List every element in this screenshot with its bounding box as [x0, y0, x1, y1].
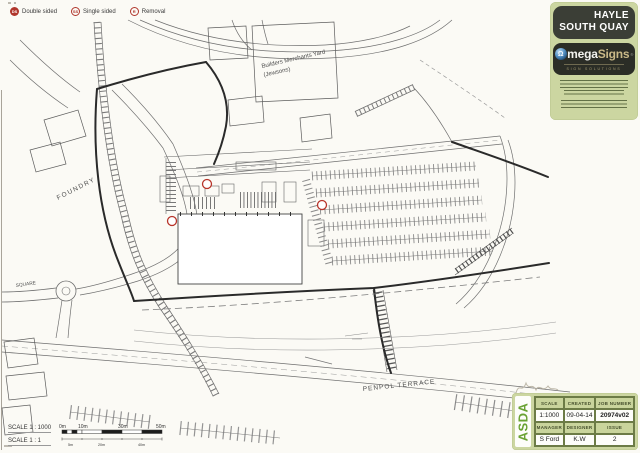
label-builders-yard: Builders Merchants Yard [261, 49, 326, 70]
asda-logo: ASDA [516, 402, 531, 441]
label-foundry: FOUNDRY [56, 176, 97, 202]
asda-logo-strip: ASDA [515, 396, 531, 447]
job-header-cell: JOB NUMBER [595, 397, 634, 409]
scale-header-cell: SCALE [535, 397, 564, 409]
scanned-plan-page: Builders Merchants Yard (Jewsons) FOUNDR… [0, 0, 640, 453]
scale-value-cell: 1:1000 [535, 409, 564, 421]
store-building [178, 214, 302, 284]
scan-artifacts [2, 3, 17, 450]
scale-block: SCALE 1 : 1000 SCALE 1 : 1 0m 10m 30m 50… [8, 423, 198, 451]
scale-sub-5m: 5m [68, 443, 73, 447]
sign-marker [318, 201, 327, 210]
fine-print-block [564, 90, 623, 97]
manager-header-cell: MANAGER [535, 422, 564, 434]
designer-value-cell: K.W [564, 434, 596, 446]
north-swing-roads [10, 20, 505, 142]
scale-sub-20m: 20m [98, 443, 105, 447]
job-value-cell: 20974v02 [595, 409, 634, 421]
title-block: ASDA SCALE CREATED JOB NUMBER 1:1000 09-… [512, 393, 638, 450]
legend-label: Double sided [22, 9, 57, 15]
omega-sphere-icon: Ω [555, 48, 567, 60]
legend-item-double-sided: DS Double sided [10, 7, 57, 16]
scale-bar: 0m 10m 30m 50m 5m 20m 40m [56, 419, 186, 451]
created-header-cell: CREATED [564, 397, 596, 409]
fine-print-text [557, 80, 631, 110]
scale-text: SCALE 1 : 1000 SCALE 1 : 1 [8, 425, 51, 450]
scale-tick-10m: 10m [78, 424, 88, 430]
fine-print-block [560, 80, 628, 88]
access-roads [2, 84, 515, 338]
fine-print-block [561, 100, 626, 110]
designer-header-cell: DESIGNER [564, 422, 596, 434]
scale-tick-30m: 30m [118, 424, 128, 430]
omegasigns-logo: Ω mega Signs ® SIGN SOLUTIONS [553, 43, 635, 75]
railway-track [94, 22, 219, 396]
legend-item-removal: R Removal [130, 7, 166, 16]
project-title-line1: HAYLE [559, 10, 629, 22]
registered-mark: ® [630, 52, 633, 57]
scale-bar-segments [62, 430, 162, 434]
scale-ruler-line [62, 438, 162, 441]
project-title: HAYLE SOUTH QUAY [553, 6, 635, 39]
roundabout [56, 281, 76, 301]
legend-label: Single sided [83, 9, 116, 15]
drawing-header-panel: HAYLE SOUTH QUAY Ω mega Signs ® SIGN SOL… [550, 2, 638, 120]
penpol-terrace-road [2, 340, 570, 404]
double-sided-icon: DS [10, 7, 19, 16]
project-title-line2: SOUTH QUAY [559, 22, 629, 34]
manager-value-cell: S Ford [535, 434, 564, 446]
logo-omega-text: mega [567, 47, 598, 61]
car-park-rows [306, 166, 493, 266]
sign-legend: DS Double sided SS Single sided R Remova… [10, 7, 165, 16]
single-sided-icon: SS [71, 7, 80, 16]
issue-header-cell: ISSUE [595, 422, 634, 434]
label-square: SQUARE [15, 280, 36, 289]
quay-wall-hatching [373, 228, 512, 372]
sign-marker [168, 217, 177, 226]
removal-icon: R [130, 7, 139, 16]
sign-marker [203, 180, 212, 189]
scale-tick-0m: 0m [59, 424, 66, 430]
railway-spur [355, 85, 415, 117]
issue-value-cell: 2 [595, 434, 634, 446]
legend-item-single-sided: SS Single sided [71, 7, 116, 16]
scale-tick-50m: 50m [156, 424, 166, 430]
legend-label: Removal [142, 9, 166, 15]
logo-signs-text: Signs [598, 47, 630, 61]
scale-1-label: SCALE 1 : 1 [8, 438, 51, 446]
label-penpol-terrace: PENPOL TERRACE [362, 378, 435, 393]
scale-sub-40m: 40m [138, 443, 145, 447]
scale-1000-label: SCALE 1 : 1000 [8, 425, 51, 433]
created-value-cell: 09-04-14 [564, 409, 596, 421]
logo-tagline: SIGN SOLUTIONS [564, 64, 624, 71]
title-block-table: SCALE CREATED JOB NUMBER 1:1000 09-04-14… [534, 396, 635, 447]
